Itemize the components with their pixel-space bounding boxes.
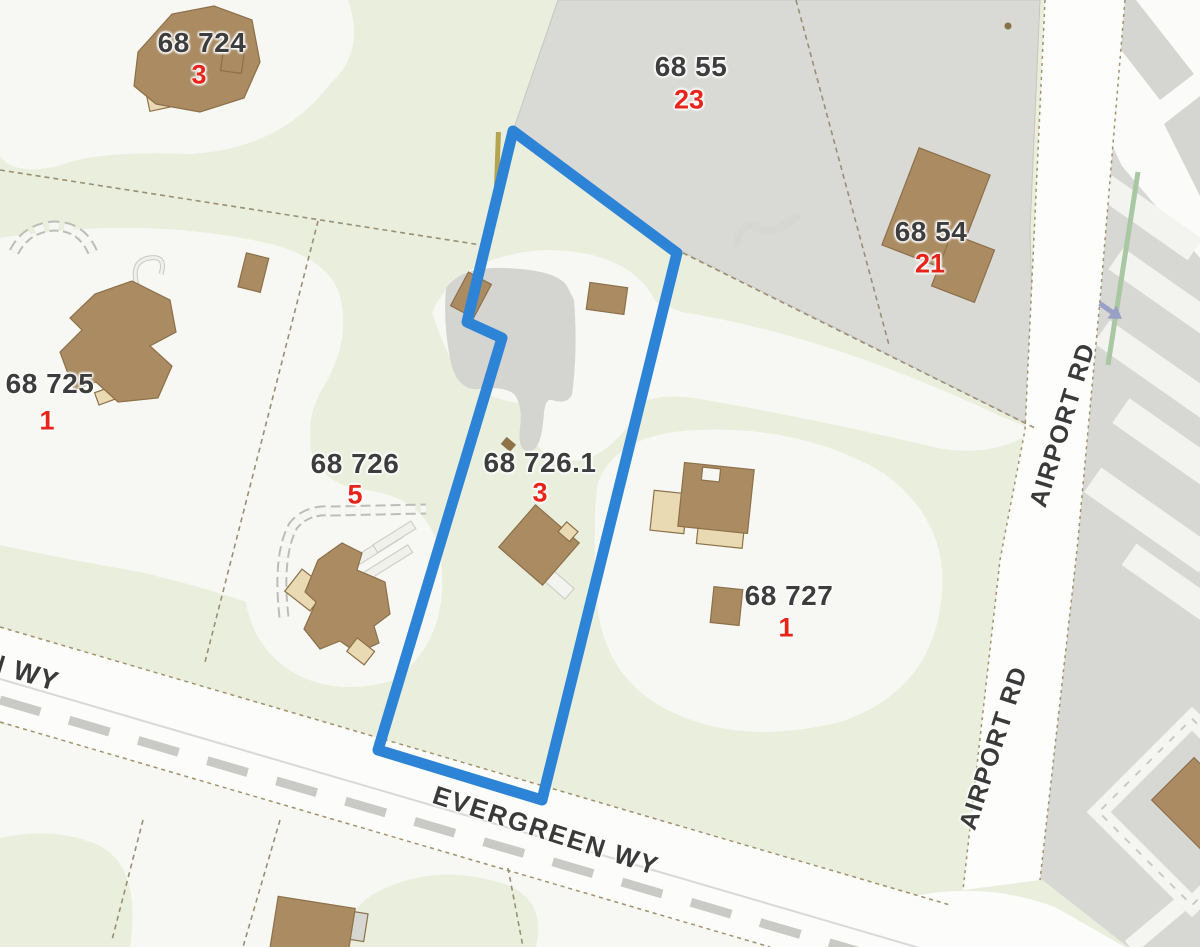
parcel-unit-count-68-54: 21	[915, 249, 945, 280]
parcel-unit-count-68-726-1: 3	[532, 478, 547, 509]
parcel-label-68-727: 68 727	[745, 580, 834, 612]
map-canvas[interactable]: 68 724 3 68 55 23 68 54 21 68 725 1 68 7…	[0, 0, 1200, 947]
parcel-label-68-726-1: 68 726.1	[484, 447, 597, 479]
parcel-label-68-724: 68 724	[158, 27, 247, 59]
shed	[586, 282, 627, 314]
parcel-unit-count-68-55: 23	[674, 85, 704, 116]
parcel-label-68-726: 68 726	[311, 448, 400, 480]
parcel-label-68-54: 68 54	[895, 216, 968, 248]
point-marker	[1005, 23, 1012, 30]
parcel-unit-count-68-727: 1	[778, 613, 793, 644]
parcel-label-68-55: 68 55	[655, 51, 728, 83]
map-layers	[0, 0, 1200, 947]
parcel-unit-count-68-724: 3	[191, 60, 206, 91]
shed	[710, 587, 743, 626]
parcel-label-68-725: 68 725	[6, 368, 95, 400]
parcel-unit-count-68-726: 5	[347, 480, 362, 511]
parcel-unit-count-68-725: 1	[39, 406, 54, 437]
